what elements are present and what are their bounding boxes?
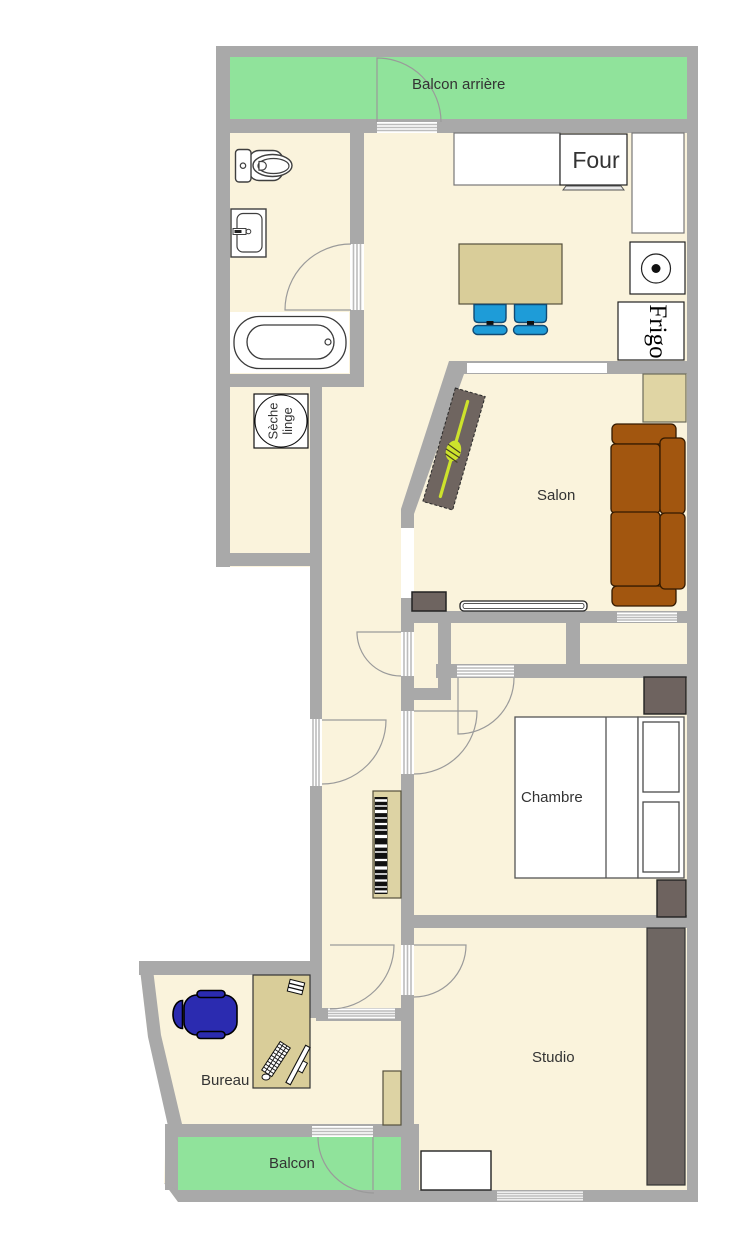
svg-text:Balcon: Balcon bbox=[269, 1155, 315, 1172]
svg-text:Chambre: Chambre bbox=[521, 789, 583, 806]
svg-text:linge: linge bbox=[280, 407, 295, 434]
svg-text:Four: Four bbox=[572, 147, 620, 173]
svg-text:Sèche: Sèche bbox=[266, 403, 281, 440]
svg-text:Frigo: Frigo bbox=[644, 304, 671, 358]
svg-text:Balcon arrière: Balcon arrière bbox=[412, 76, 505, 93]
svg-text:Salon: Salon bbox=[537, 487, 575, 504]
svg-text:Studio: Studio bbox=[532, 1049, 575, 1066]
svg-text:Bureau: Bureau bbox=[201, 1072, 249, 1089]
